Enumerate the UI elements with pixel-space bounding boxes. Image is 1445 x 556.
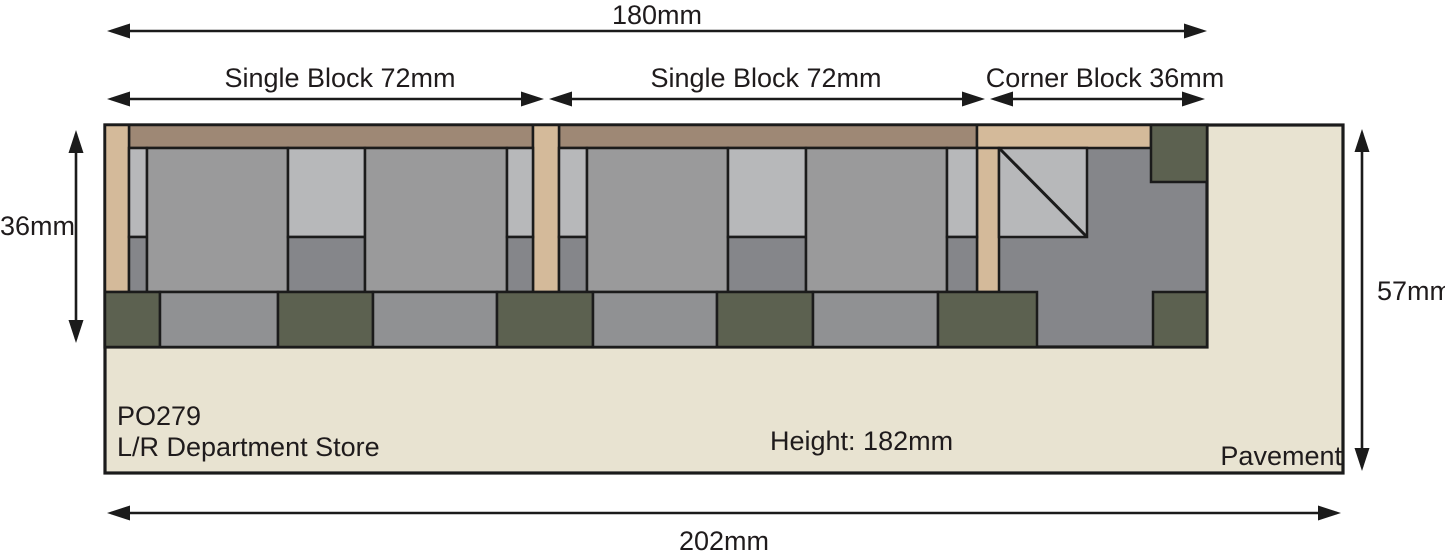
dim-arrow-pavement-depth-57-arrowhead [1355,129,1370,152]
block1-window-top [288,148,365,237]
dim-label-single-block-2: Single Block 72mm [650,63,881,94]
kit-title: PO279 L/R Department Store [117,401,380,463]
base-band-gray-2 [373,292,497,347]
corner-top-band [977,125,1151,148]
dim-arrow-single-block-2-arrowhead [962,92,985,107]
block1-strip-left-bottom [129,237,147,292]
block2-top-band [559,125,977,148]
base-band-green-6 [1153,292,1207,347]
block2-strip-right-top [947,148,977,237]
dim-arrow-total-width-arrowhead [107,24,130,39]
dim-arrow-single-block-1-arrowhead [521,92,544,107]
block2-strip-left-bottom [559,237,587,292]
height-note: Height: 182mm [770,426,953,457]
block1-panel-left [147,148,288,292]
diagram-page: 180mm Single Block 72mm Single Block 72m… [0,0,1445,556]
dim-label-corner-block: Corner Block 36mm [986,63,1225,94]
block2-panel-left [587,148,728,292]
block2-panel-right [806,148,947,292]
block2-window-top [728,148,806,237]
kit-name: L/R Department Store [117,432,380,463]
corner-green-square-top [1151,125,1207,182]
base-band-green-5 [938,292,1037,347]
block1-strip-left-top [129,148,147,237]
corner-pilaster [977,148,999,292]
block1-strip-right-top [507,148,533,237]
block1-panel-right [365,148,507,292]
dim-arrow-single-block-2-arrowhead [549,92,572,107]
dim-arrow-single-block-1-arrowhead [107,92,130,107]
dim-arrow-total-width-pavement-arrowhead [1318,506,1341,521]
dim-arrow-total-width-arrowhead [1184,24,1207,39]
base-band-green-2 [278,292,373,347]
block2-strip-right-bottom [947,237,977,292]
kit-code: PO279 [117,401,380,432]
dim-label-total-width: 180mm [612,0,702,31]
dim-label-total-width-pavement: 202mm [679,526,769,556]
block1-top-band [129,125,533,148]
dim-arrow-depth-36-arrowhead [69,130,84,153]
base-band-gray-4 [813,292,938,347]
left-pilaster [105,125,129,292]
dim-label-single-block-1: Single Block 72mm [224,63,455,94]
block1-window-bottom [288,237,365,292]
dim-arrow-depth-36-arrowhead [69,320,84,343]
block2-strip-left-top [559,148,587,237]
base-band-green-3 [497,292,593,347]
pavement-label: Pavement [1220,441,1342,472]
block2-window-bottom [728,237,806,292]
dim-label-depth: 36mm [0,211,68,242]
base-band-gray-3 [593,292,717,347]
base-band-green-4 [717,292,813,347]
block1-strip-right-bottom [507,237,533,292]
dim-arrow-total-width-pavement-arrowhead [107,506,130,521]
dim-arrow-pavement-depth-57-arrowhead [1355,448,1370,471]
base-band-gray-1 [160,292,278,347]
dim-label-pavement-depth: 57mm [1377,276,1445,307]
divider-pilaster [533,125,559,292]
base-band-green-1 [105,292,160,347]
